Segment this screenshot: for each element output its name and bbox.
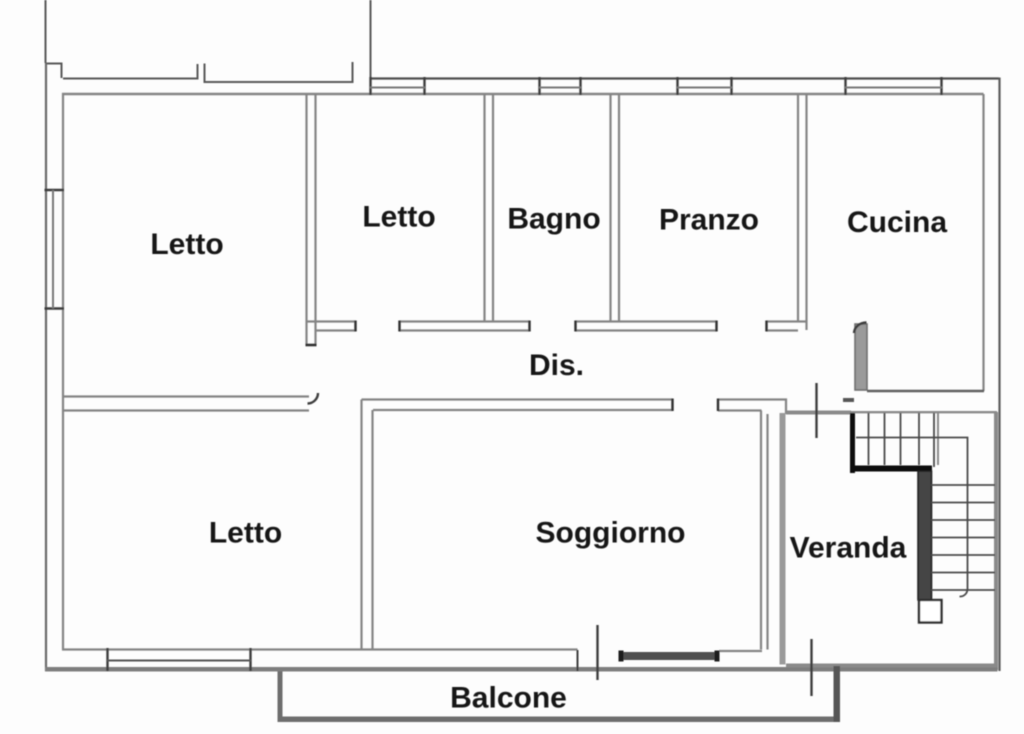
svg-text:Soggiorno: Soggiorno xyxy=(536,517,686,550)
svg-text:Bagno: Bagno xyxy=(507,203,600,236)
svg-text:Pranzo: Pranzo xyxy=(659,204,759,237)
svg-text:Letto: Letto xyxy=(150,228,223,261)
svg-text:Letto: Letto xyxy=(209,517,282,550)
svg-text:Veranda: Veranda xyxy=(790,532,907,565)
svg-text:Dis.: Dis. xyxy=(529,349,584,382)
svg-text:Balcone: Balcone xyxy=(450,682,567,715)
svg-text:Letto: Letto xyxy=(362,201,435,234)
svg-text:Cucina: Cucina xyxy=(847,206,947,239)
